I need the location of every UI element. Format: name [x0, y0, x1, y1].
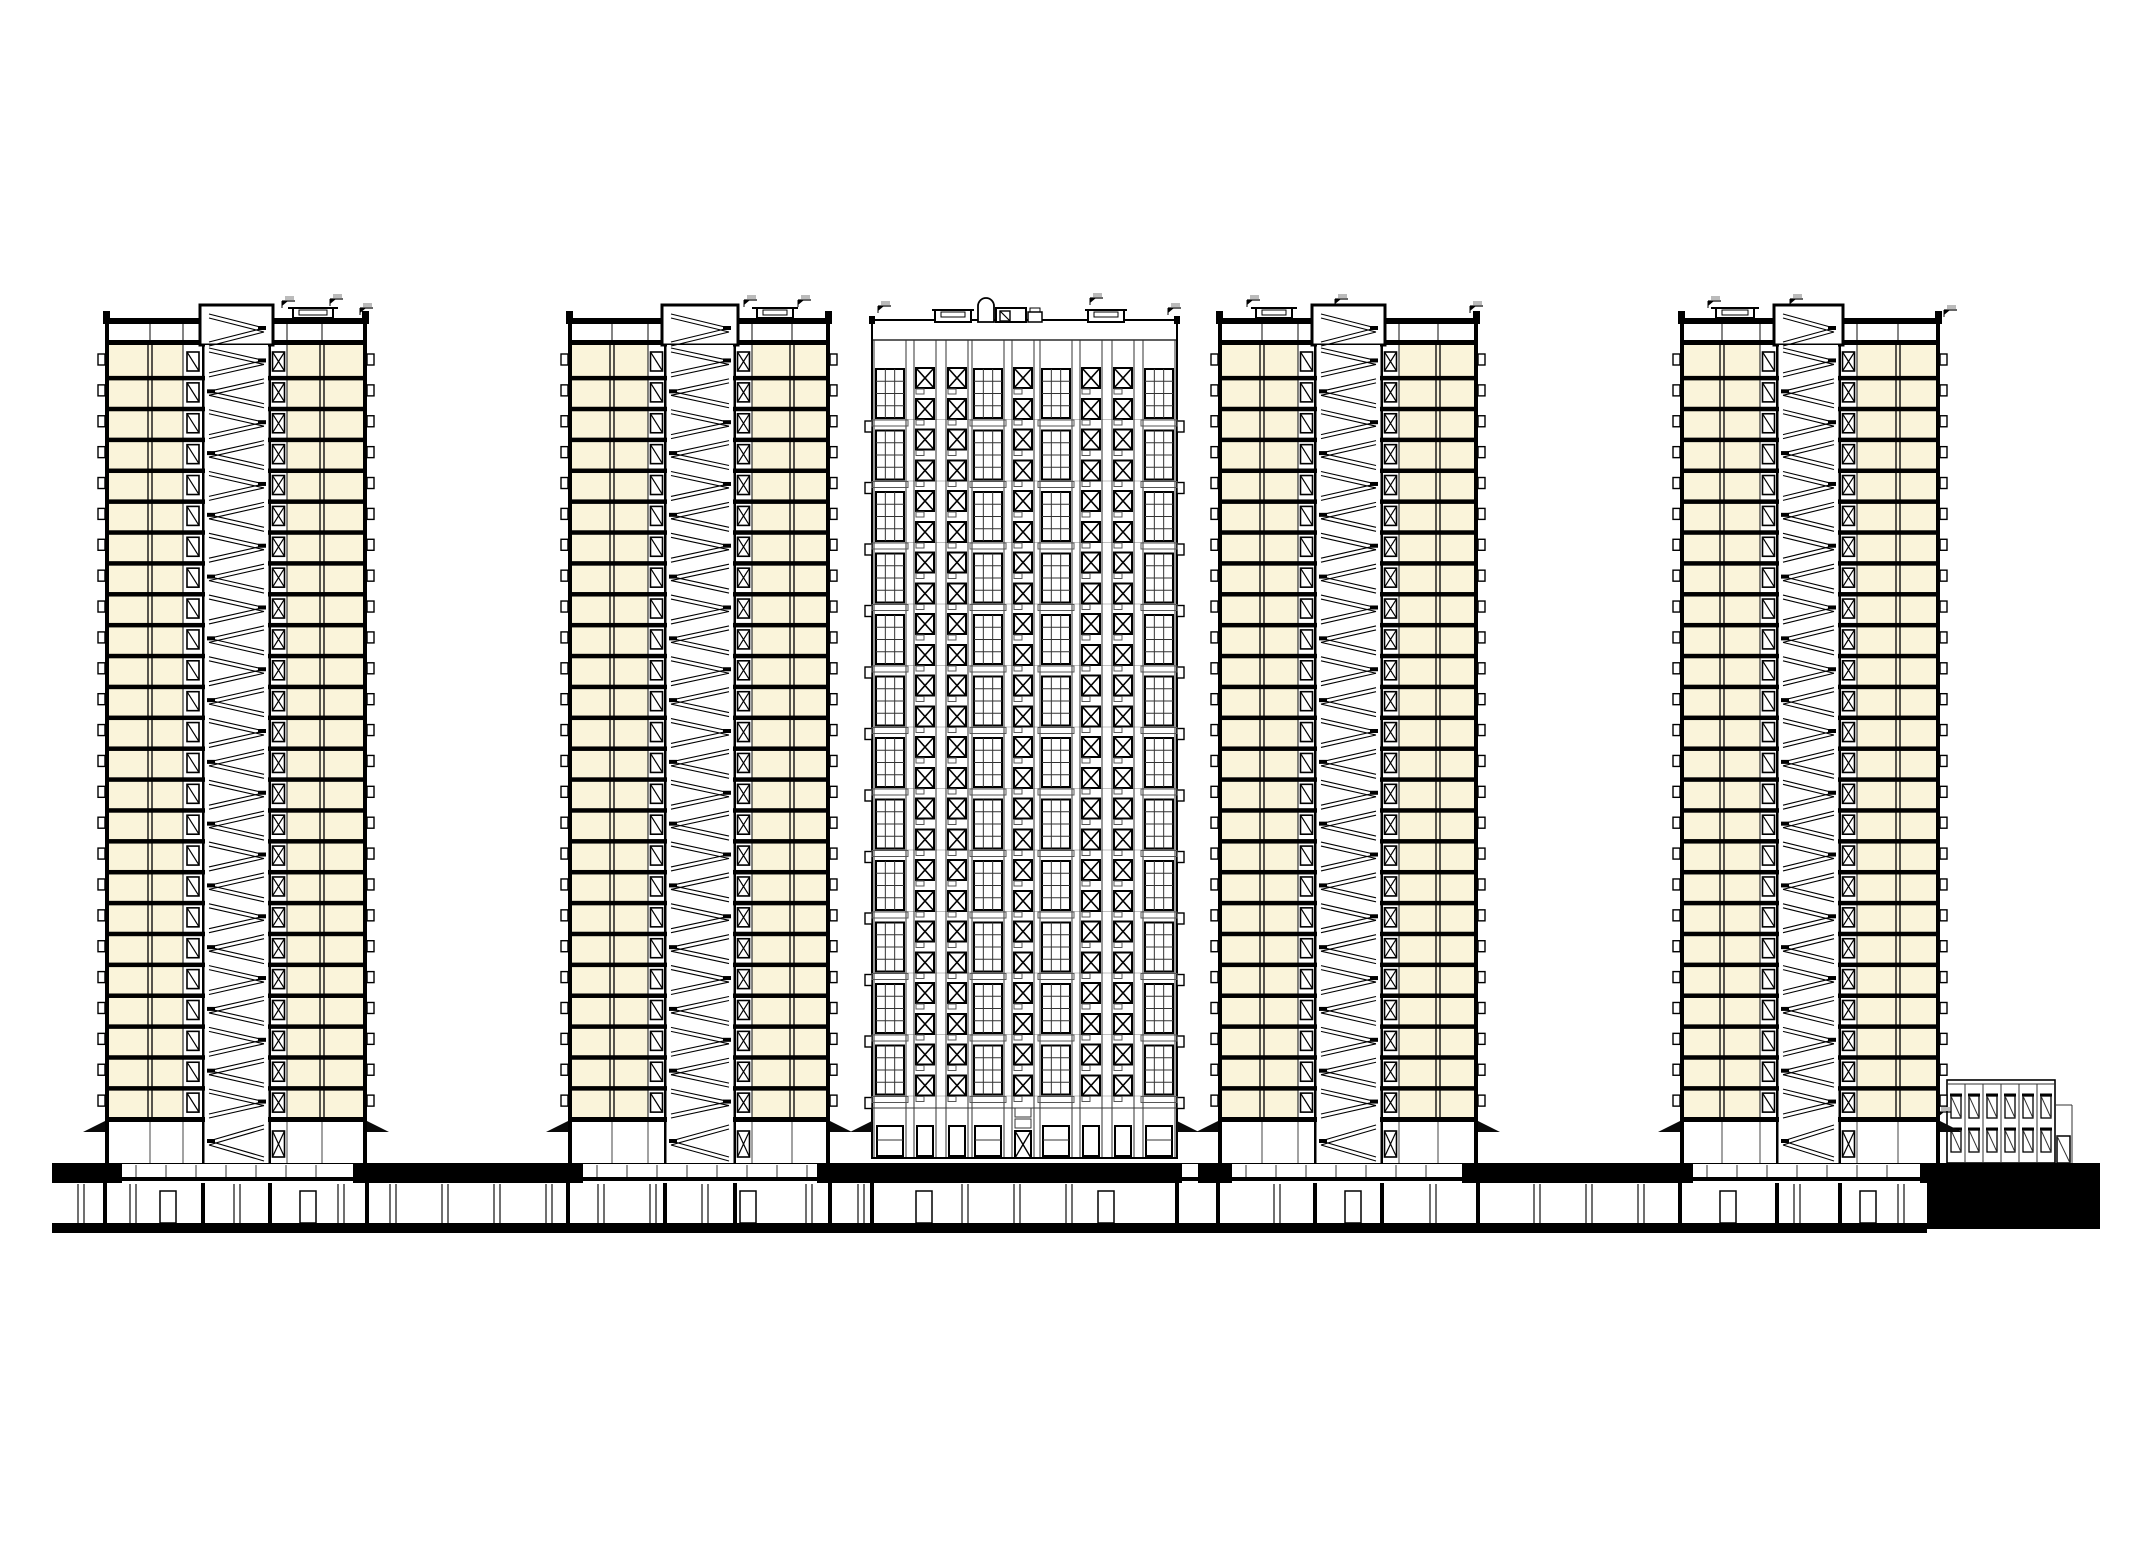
stair-landing: [723, 914, 731, 918]
balcony-tick: [1940, 416, 1947, 427]
balcony-tick: [830, 910, 837, 921]
ground-window: [1083, 1126, 1099, 1156]
marker-text-blur: [1711, 296, 1720, 300]
balcony-tick: [865, 1036, 872, 1047]
stair-landing: [1781, 1139, 1789, 1143]
balcony-tick: [830, 416, 837, 427]
balcony-tick: [1211, 910, 1218, 921]
balcony-tick: [98, 1033, 105, 1044]
balcony-tick: [1673, 786, 1680, 797]
balcony-tick: [865, 667, 872, 678]
balcony-tick: [1478, 1033, 1485, 1044]
stair-landing: [1319, 760, 1327, 764]
outer-wall: [1936, 324, 1940, 1163]
balcony-tick: [1211, 539, 1218, 550]
stair-landing: [1781, 822, 1789, 826]
balcony-tick: [1673, 663, 1680, 674]
stair-landing: [207, 945, 215, 949]
marker-text-blur: [1947, 305, 1956, 309]
balcony-tick: [561, 385, 568, 396]
stair-landing: [1828, 1100, 1836, 1104]
stair-landing: [1370, 853, 1378, 857]
stair-landing: [1828, 326, 1836, 330]
stair-landing: [207, 1139, 215, 1143]
balcony-tick: [561, 1033, 568, 1044]
balcony-tick: [1673, 508, 1680, 519]
annex-building: [1938, 1080, 2072, 1163]
stair-landing: [1370, 326, 1378, 330]
stair-landing: [723, 976, 731, 980]
balcony-tick: [830, 848, 837, 859]
balcony-tick: [367, 416, 374, 427]
balcony-tick: [98, 910, 105, 921]
balcony-tick: [1177, 1098, 1184, 1109]
balcony-tick: [865, 790, 872, 801]
balcony-tick: [1478, 478, 1485, 489]
balcony-tick: [367, 1095, 374, 1106]
stair-landing: [258, 358, 266, 362]
balcony-tick: [98, 447, 105, 458]
core-wall: [1839, 345, 1842, 1163]
balcony-tick: [98, 508, 105, 519]
balcony-tick: [1478, 817, 1485, 828]
core-wall: [734, 345, 737, 1163]
stair-landing: [207, 760, 215, 764]
core-wall: [269, 345, 272, 1163]
balcony-tick: [1673, 755, 1680, 766]
balcony-tick: [1673, 1033, 1680, 1044]
balcony-tick: [561, 941, 568, 952]
balcony-tick: [98, 539, 105, 550]
balcony-tick: [98, 725, 105, 736]
stair-landing: [1370, 1038, 1378, 1042]
balcony-tick: [1673, 632, 1680, 643]
balcony-tick: [1940, 601, 1947, 612]
stair-landing: [669, 760, 677, 764]
ground-window: [949, 1126, 965, 1156]
site-section: [0, 0, 2153, 1559]
balcony-tick: [830, 478, 837, 489]
tower-1-section: [83, 294, 389, 1163]
stair-landing: [1828, 976, 1836, 980]
marker-text-blur: [333, 294, 342, 298]
balcony-tick: [1211, 725, 1218, 736]
balcony-tick: [367, 601, 374, 612]
balcony-tick: [1940, 1002, 1947, 1013]
window-strip: [914, 340, 936, 1157]
basement-wall: [201, 1183, 205, 1223]
balcony-tick: [561, 354, 568, 365]
balcony-tick: [830, 1095, 837, 1106]
basement-wall: [663, 1183, 667, 1223]
stair-landing: [1319, 822, 1327, 826]
stair-landing: [1828, 729, 1836, 733]
balcony-tick: [830, 941, 837, 952]
balcony-tick: [1940, 786, 1947, 797]
stair-landing: [669, 945, 677, 949]
balcony-tick: [1940, 447, 1947, 458]
balcony-tick: [561, 755, 568, 766]
stair-landing: [1319, 451, 1327, 455]
balcony-tick: [367, 539, 374, 550]
basement-door: [1345, 1191, 1361, 1223]
balcony-tick: [561, 725, 568, 736]
stair-landing: [723, 667, 731, 671]
balcony-tick: [1211, 447, 1218, 458]
balcony-tick: [561, 601, 568, 612]
balcony-tick: [367, 694, 374, 705]
stair-landing: [669, 883, 677, 887]
balcony-tick: [561, 786, 568, 797]
ground-window: [975, 1126, 1001, 1156]
stair-landing: [1319, 513, 1327, 517]
ground-floor-slab: [122, 1177, 353, 1181]
stair-landing: [669, 451, 677, 455]
balcony-tick: [98, 478, 105, 489]
stair-landing: [1781, 451, 1789, 455]
balcony-tick: [1211, 385, 1218, 396]
marker-text-blur: [1473, 301, 1482, 305]
balcony-tick: [830, 354, 837, 365]
balcony-tick: [98, 663, 105, 674]
basement-wall: [1476, 1183, 1480, 1223]
stair-landing: [1319, 575, 1327, 579]
stair-landing: [207, 883, 215, 887]
stair-landing: [1781, 1069, 1789, 1073]
balcony-tick: [1478, 786, 1485, 797]
balcony-tick: [1940, 385, 1947, 396]
balcony-tick: [1940, 1064, 1947, 1075]
vent-dome-icon: [978, 298, 994, 322]
balcony-tick: [865, 606, 872, 617]
stair-landing: [1319, 389, 1327, 393]
stair-landing: [723, 326, 731, 330]
stair-landing: [207, 513, 215, 517]
stair-landing: [1828, 605, 1836, 609]
balcony-tick: [1478, 570, 1485, 581]
basement-wall: [566, 1183, 570, 1223]
stair-landing: [1370, 914, 1378, 918]
balcony-tick: [367, 478, 374, 489]
balcony-tick: [1211, 879, 1218, 890]
balcony-tick: [1673, 725, 1680, 736]
balcony-tick: [865, 913, 872, 924]
balcony-tick: [561, 848, 568, 859]
balcony-tick: [1478, 879, 1485, 890]
balcony-tick: [367, 786, 374, 797]
marker-text-blur: [881, 301, 890, 305]
stair-landing: [258, 853, 266, 857]
stair-landing: [258, 791, 266, 795]
marker-text-blur: [801, 295, 810, 299]
stair-landing: [258, 976, 266, 980]
balcony-tick: [1478, 725, 1485, 736]
stair-landing: [207, 698, 215, 702]
balcony-tick: [1177, 544, 1184, 555]
balcony-tick: [98, 385, 105, 396]
parapet-cap: [362, 311, 369, 318]
balcony-tick: [561, 1095, 568, 1106]
stair-landing: [258, 667, 266, 671]
balcony-tick: [1673, 910, 1680, 921]
balcony-tick: [367, 385, 374, 396]
basement-wall: [268, 1183, 272, 1223]
stair-landing: [1370, 976, 1378, 980]
balcony-tick: [1478, 663, 1485, 674]
balcony-tick: [1211, 786, 1218, 797]
balcony-tick: [1940, 570, 1947, 581]
foundation-band: [52, 1223, 1927, 1233]
balcony-tick: [1940, 910, 1947, 921]
parapet-cap: [1678, 311, 1685, 318]
stair-landing: [723, 791, 731, 795]
stair-landing: [723, 605, 731, 609]
balcony-tick: [830, 601, 837, 612]
core-wall: [1776, 345, 1779, 1163]
stair-landing: [207, 575, 215, 579]
balcony-tick: [561, 1064, 568, 1075]
basement-wall: [733, 1183, 737, 1223]
stair-landing: [1781, 883, 1789, 887]
balcony-tick: [1673, 879, 1680, 890]
parapet-cap: [1174, 316, 1180, 324]
balcony-tick: [98, 755, 105, 766]
balcony-tick: [1478, 416, 1485, 427]
balcony-tick: [98, 786, 105, 797]
balcony-tick: [561, 694, 568, 705]
balcony-tick: [830, 725, 837, 736]
balcony-tick: [1177, 483, 1184, 494]
outer-wall: [105, 324, 109, 1163]
balcony-tick: [561, 972, 568, 983]
balcony-tick: [830, 1064, 837, 1075]
balcony-tick: [830, 539, 837, 550]
balcony-tick: [1478, 385, 1485, 396]
stair-landing: [1319, 945, 1327, 949]
stair-landing: [1781, 760, 1789, 764]
stair-landing: [258, 482, 266, 486]
balcony-tick: [830, 1002, 837, 1013]
ground-window: [877, 1126, 903, 1156]
stair-landing: [669, 1069, 677, 1073]
balcony-tick: [1177, 606, 1184, 617]
balcony-tick: [367, 817, 374, 828]
balcony-tick: [830, 632, 837, 643]
balcony-tick: [1478, 848, 1485, 859]
balcony-tick: [1940, 1033, 1947, 1044]
stair-landing: [1319, 1069, 1327, 1073]
stair-landing: [1781, 575, 1789, 579]
balcony-tick: [1211, 508, 1218, 519]
balcony-tick: [367, 354, 374, 365]
outer-wall: [826, 324, 830, 1163]
stair-landing: [1370, 544, 1378, 548]
stair-landing: [1828, 791, 1836, 795]
basement-wall: [1175, 1183, 1179, 1223]
balcony-tick: [1673, 1095, 1680, 1106]
outer-wall: [363, 324, 367, 1163]
balcony-tick: [561, 508, 568, 519]
stair-landing: [1828, 420, 1836, 424]
ground-floor-slab: [1182, 1177, 1198, 1181]
basement-wall: [1216, 1183, 1220, 1223]
stair-landing: [1828, 667, 1836, 671]
balcony-tick: [1673, 570, 1680, 581]
balcony-tick: [1673, 416, 1680, 427]
stair-landing: [669, 389, 677, 393]
balcony-tick: [830, 663, 837, 674]
basement-door: [300, 1191, 316, 1223]
roof-box: [1028, 312, 1042, 322]
balcony-tick: [1177, 421, 1184, 432]
ground-window: [1043, 1126, 1069, 1156]
balcony-tick: [1211, 972, 1218, 983]
marker-text-blur: [285, 296, 294, 300]
balcony-tick: [1478, 354, 1485, 365]
balcony-tick: [367, 725, 374, 736]
stair-landing: [1319, 1007, 1327, 1011]
stair-landing: [669, 636, 677, 640]
balcony-tick: [1177, 667, 1184, 678]
ground-window: [917, 1126, 933, 1156]
stair-landing: [258, 1038, 266, 1042]
balcony-tick: [1940, 478, 1947, 489]
room-block-left: [1684, 345, 1760, 1117]
stair-landing: [1828, 914, 1836, 918]
stair-landing: [1781, 513, 1789, 517]
balcony-tick: [98, 879, 105, 890]
balcony-tick: [98, 1095, 105, 1106]
basement-wall: [1678, 1183, 1682, 1223]
balcony-tick: [1673, 1002, 1680, 1013]
balcony-tick: [1940, 1095, 1947, 1106]
balcony-tick: [830, 508, 837, 519]
marker-text-blur: [1793, 294, 1802, 298]
balcony-tick: [1673, 1064, 1680, 1075]
stair-landing: [723, 544, 731, 548]
balcony-tick: [865, 544, 872, 555]
stair-landing: [207, 636, 215, 640]
balcony-tick: [865, 483, 872, 494]
balcony-tick: [98, 1064, 105, 1075]
balcony-tick: [1211, 1002, 1218, 1013]
stair-landing: [1319, 883, 1327, 887]
room-block-left: [109, 345, 183, 1117]
balcony-tick: [830, 879, 837, 890]
room-block-right: [752, 345, 826, 1117]
balcony-tick: [1211, 941, 1218, 952]
stair-landing: [1319, 698, 1327, 702]
stair-landing: [1370, 482, 1378, 486]
balcony-tick: [1211, 1064, 1218, 1075]
marker-text-blur: [747, 295, 756, 299]
balcony-tick: [561, 910, 568, 921]
basement-door: [160, 1191, 176, 1223]
balcony-tick: [1478, 539, 1485, 550]
stair-landing: [1781, 389, 1789, 393]
balcony-tick: [1673, 817, 1680, 828]
balcony-tick: [561, 570, 568, 581]
balcony-tick: [561, 663, 568, 674]
balcony-tick: [1211, 755, 1218, 766]
basement-door: [916, 1191, 932, 1223]
stair-landing: [669, 1007, 677, 1011]
stair-landing: [207, 451, 215, 455]
balcony-tick: [1211, 354, 1218, 365]
stair-landing: [258, 544, 266, 548]
stair-landing: [1370, 420, 1378, 424]
balcony-tick: [1673, 972, 1680, 983]
parapet-cap: [1473, 311, 1480, 318]
balcony-tick: [1478, 1002, 1485, 1013]
balcony-tick: [1177, 729, 1184, 740]
balcony-tick: [1940, 632, 1947, 643]
balcony-tick: [1478, 1064, 1485, 1075]
parapet-cap: [825, 311, 832, 318]
balcony-tick: [1478, 632, 1485, 643]
stair-landing: [669, 698, 677, 702]
stair-landing: [1370, 605, 1378, 609]
balcony-tick: [98, 694, 105, 705]
balcony-tick: [1940, 848, 1947, 859]
marker-text-blur: [1250, 295, 1259, 299]
stair-landing: [723, 729, 731, 733]
balcony-tick: [1211, 1095, 1218, 1106]
basement-door: [740, 1191, 756, 1223]
tower-4-section: [1196, 294, 1500, 1163]
balcony-tick: [1211, 601, 1218, 612]
stair-landing: [258, 729, 266, 733]
balcony-tick: [1940, 879, 1947, 890]
parapet-cap: [103, 311, 110, 318]
balcony-tick: [1940, 539, 1947, 550]
stair-landing: [1828, 853, 1836, 857]
window-strip: [1080, 340, 1102, 1157]
balcony-tick: [98, 941, 105, 952]
balcony-tick: [830, 1033, 837, 1044]
balcony-tick: [561, 632, 568, 643]
balcony-tick: [367, 972, 374, 983]
balcony-tick: [1177, 790, 1184, 801]
tower-3-elevation: [850, 293, 1199, 1158]
balcony-tick: [1211, 694, 1218, 705]
balcony-tick: [1940, 755, 1947, 766]
basement-wall: [1838, 1183, 1842, 1223]
drawing-canvas: [0, 0, 2153, 1559]
stair-landing: [258, 605, 266, 609]
balcony-tick: [1673, 941, 1680, 952]
balcony-tick: [1478, 447, 1485, 458]
stair-landing: [1370, 729, 1378, 733]
basement-wall: [365, 1183, 369, 1223]
stair-landing: [1781, 1007, 1789, 1011]
balcony-tick: [1211, 416, 1218, 427]
balcony-tick: [865, 1098, 872, 1109]
outer-wall: [1680, 324, 1684, 1163]
marker-text-blur: [363, 303, 372, 307]
stair-landing: [1828, 1038, 1836, 1042]
marker-text-blur: [1093, 293, 1102, 297]
balcony-tick: [561, 1002, 568, 1013]
balcony-tick: [98, 632, 105, 643]
stair-landing: [207, 1069, 215, 1073]
stair-landing: [1781, 945, 1789, 949]
stair-landing: [723, 482, 731, 486]
balcony-tick: [561, 539, 568, 550]
balcony-tick: [367, 755, 374, 766]
stair-landing: [1319, 1139, 1327, 1143]
balcony-tick: [98, 416, 105, 427]
